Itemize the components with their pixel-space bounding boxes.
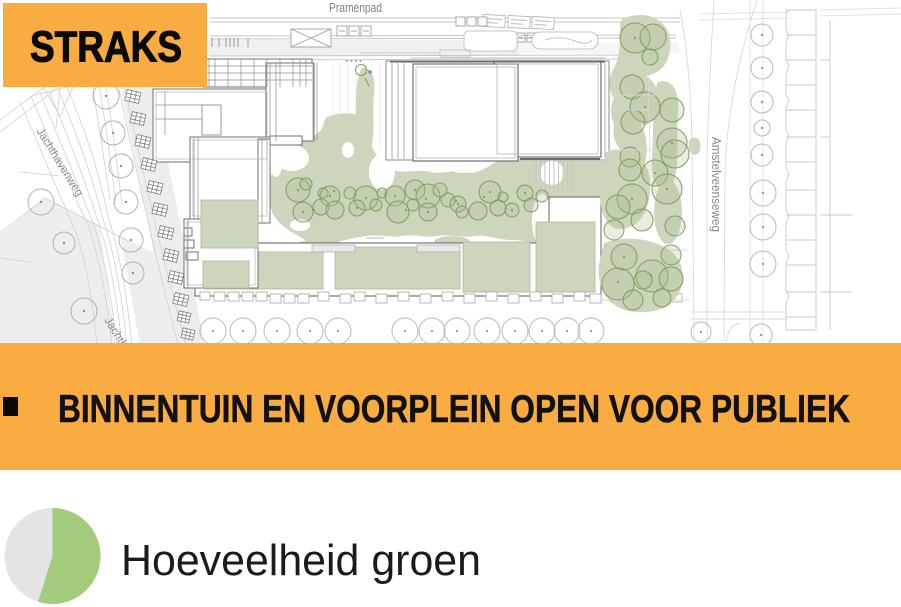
svg-text:STRAKS: STRAKS xyxy=(30,24,182,72)
svg-text:Pramenpad: Pramenpad xyxy=(329,1,382,15)
svg-text:BINNENTUIN EN VOORPLEIN OPEN V: BINNENTUIN EN VOORPLEIN OPEN VOOR PUBLIE… xyxy=(58,388,850,431)
svg-text:Amstelveenseweg: Amstelveenseweg xyxy=(709,137,723,232)
svg-text:Hoeveelheid groen: Hoeveelheid groen xyxy=(121,536,481,585)
